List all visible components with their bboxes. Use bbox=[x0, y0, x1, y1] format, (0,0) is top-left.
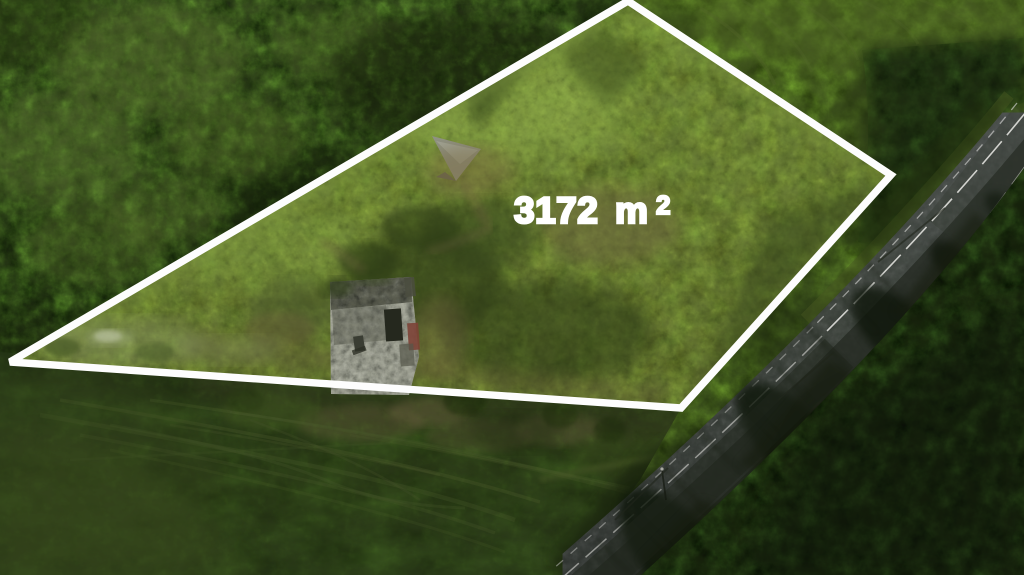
svg-text:3172: 3172 bbox=[514, 190, 598, 231]
svg-text:2: 2 bbox=[656, 190, 670, 220]
svg-text:m: m bbox=[615, 190, 648, 231]
